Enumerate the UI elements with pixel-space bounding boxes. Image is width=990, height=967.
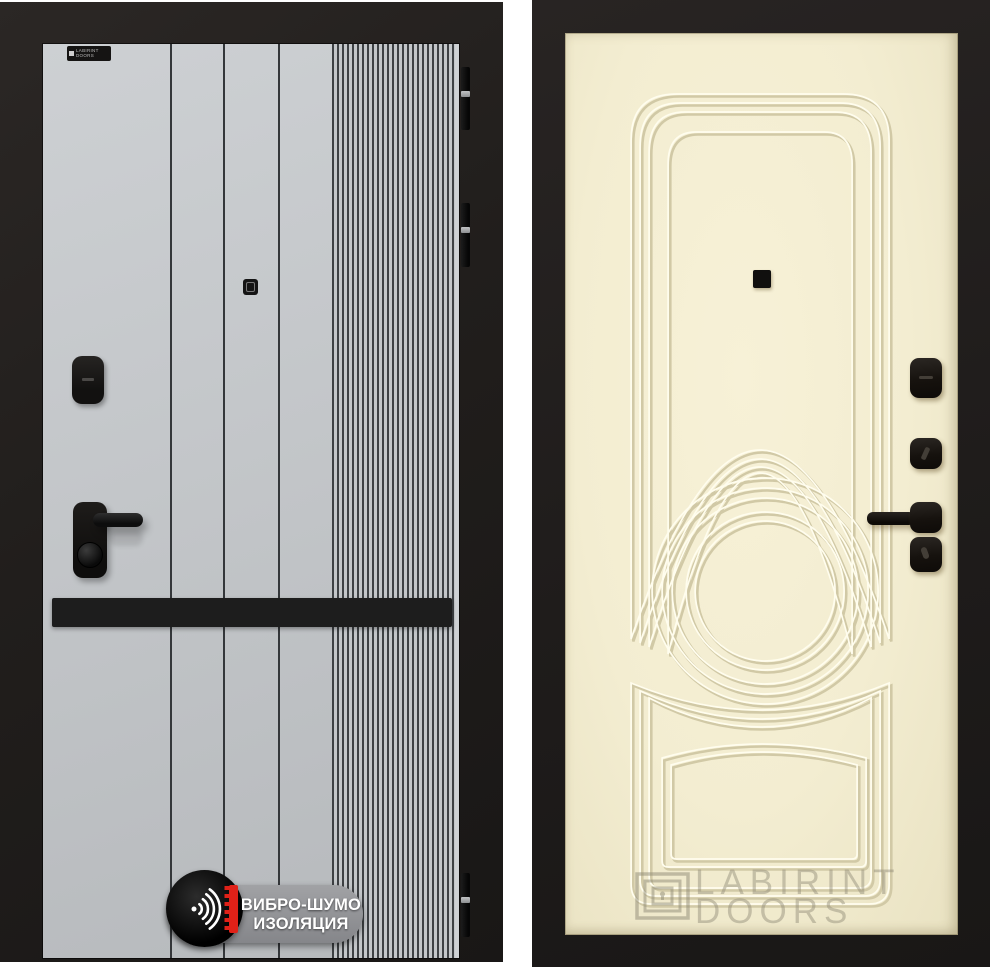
vertical-groove [223, 44, 225, 958]
door-handle [867, 512, 915, 525]
left-door-leaf: LABIRINT DOORS ВИБРО-ШУМО [43, 44, 459, 958]
brand-label-text: LABIRINT DOORS [76, 49, 106, 58]
handle-shadow [109, 530, 143, 546]
lock-knob [77, 542, 103, 568]
brand-logo-icon [69, 51, 74, 56]
hinge-pin [461, 227, 470, 233]
vertical-groove [278, 44, 280, 958]
hinge-pin [461, 897, 470, 903]
door-edge-strip [455, 44, 459, 958]
badge-line-1: ВИБРО-ШУМО [241, 896, 361, 915]
kick-plate-band [52, 598, 452, 627]
upper-keyhole-escutcheon [910, 438, 942, 469]
door-handle [93, 513, 143, 527]
brand-label: LABIRINT DOORS [67, 46, 111, 61]
emblem-glyph-icon [246, 282, 255, 292]
keyhole-mark [920, 546, 930, 559]
keyhole-slot [82, 378, 94, 381]
right-door-card[interactable]: LABIRINT DOORS [532, 0, 990, 967]
labyrinth-logo-icon [633, 872, 692, 920]
decorative-molding [565, 33, 958, 935]
peephole [753, 270, 771, 288]
hinge-top [461, 67, 470, 130]
insulation-badge-icon-circle [166, 870, 243, 947]
right-door-leaf: LABIRINT DOORS [565, 33, 958, 935]
ribbed-texture [332, 44, 455, 958]
vertical-groove [170, 44, 172, 958]
door-emblem [243, 279, 258, 295]
thumbturn-escutcheon [910, 358, 942, 398]
keyhole-mark [921, 447, 931, 461]
handle-base [910, 502, 942, 533]
insulation-badge-text: ВИБРО-ШУМО ИЗОЛЯЦИЯ [241, 893, 361, 937]
sound-wave-icon [166, 870, 243, 947]
thumbturn-slot [919, 376, 933, 379]
keyhole-escutcheon [72, 356, 104, 404]
hinge-pin [461, 91, 470, 97]
door-catalog-image: { "left_door": { "description": "grey mo… [0, 0, 990, 967]
hinge-middle [461, 203, 470, 267]
left-door-card[interactable]: LABIRINT DOORS ВИБРО-ШУМО [0, 2, 503, 962]
lower-keyhole-escutcheon [910, 537, 942, 572]
badge-line-2: ИЗОЛЯЦИЯ [253, 915, 348, 934]
watermark-text: LABIRINT DOORS [695, 868, 901, 926]
hinge-bottom [461, 873, 470, 937]
